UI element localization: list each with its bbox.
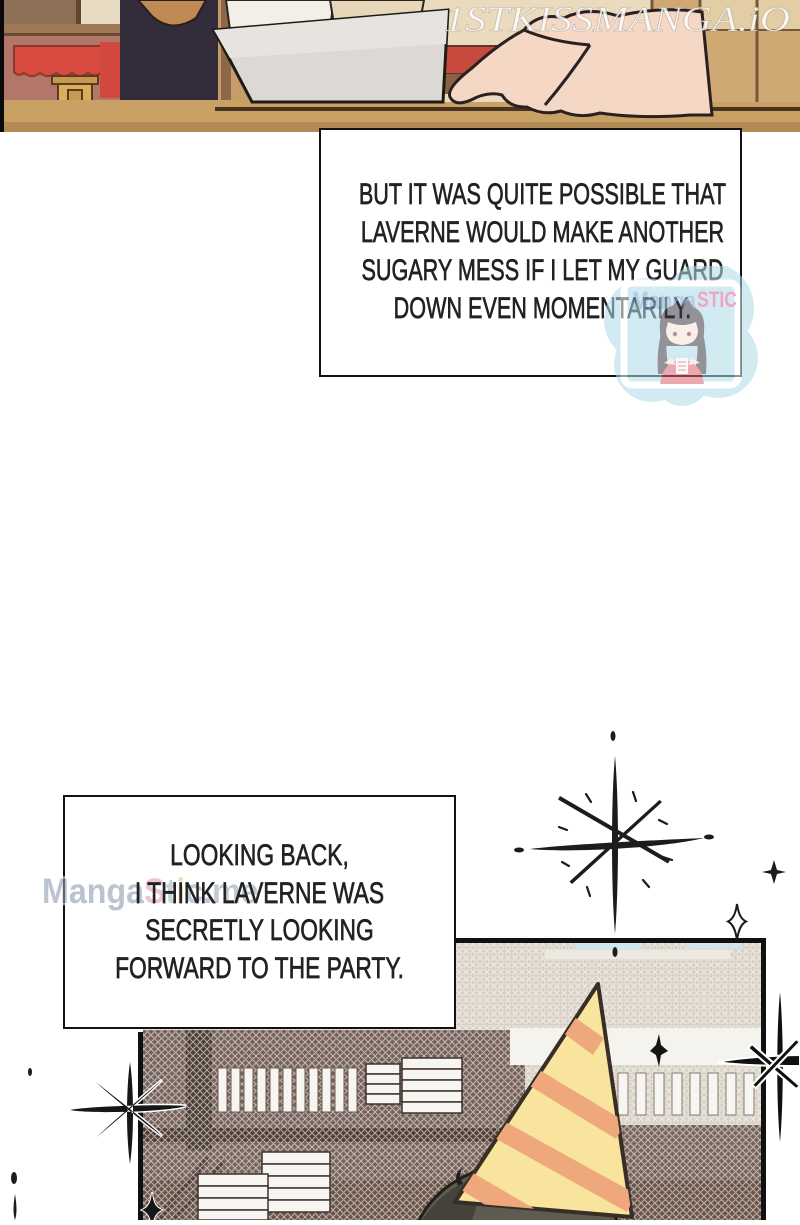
svg-text:STIC: STIC <box>697 287 737 312</box>
svg-text:1STKISSMANGA.iO: 1STKISSMANGA.iO <box>444 0 790 39</box>
